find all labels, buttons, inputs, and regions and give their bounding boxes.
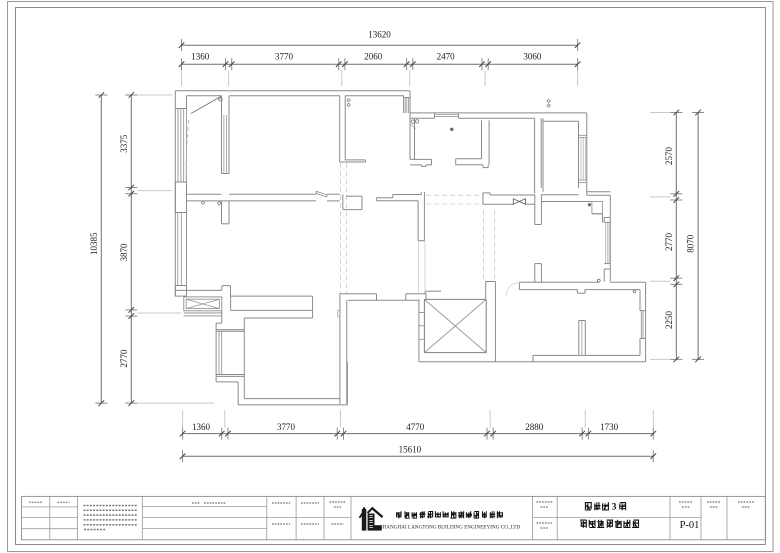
svg-text:1360: 1360 bbox=[192, 422, 211, 432]
svg-text:4770: 4770 bbox=[406, 422, 425, 432]
svg-text:10385: 10385 bbox=[89, 232, 99, 255]
svg-text:1730: 1730 bbox=[600, 422, 619, 432]
svg-text:1360: 1360 bbox=[191, 52, 210, 62]
svg-text:8070: 8070 bbox=[686, 234, 696, 253]
svg-text:15610: 15610 bbox=[399, 444, 422, 454]
svg-text:2570: 2570 bbox=[664, 147, 674, 166]
svg-text:3060: 3060 bbox=[523, 52, 542, 62]
svg-text:2770: 2770 bbox=[664, 233, 674, 252]
svg-text:2470: 2470 bbox=[437, 52, 456, 62]
svg-text:2880: 2880 bbox=[525, 422, 544, 432]
svg-text:3770: 3770 bbox=[277, 422, 296, 432]
svg-text:SHANGHAI LANGTONG BUILDING ENG: SHANGHAI LANGTONG BUILDING ENGINEEYING C… bbox=[380, 526, 521, 531]
svg-text:2250: 2250 bbox=[664, 311, 674, 330]
svg-text:3: 3 bbox=[612, 502, 617, 512]
svg-text:3375: 3375 bbox=[119, 134, 129, 153]
svg-text:3770: 3770 bbox=[275, 52, 294, 62]
svg-text:3870: 3870 bbox=[119, 243, 129, 262]
svg-text:P-01: P-01 bbox=[680, 520, 700, 531]
svg-text:2770: 2770 bbox=[119, 349, 129, 368]
svg-text:13620: 13620 bbox=[368, 30, 391, 40]
svg-text:2060: 2060 bbox=[364, 52, 383, 62]
